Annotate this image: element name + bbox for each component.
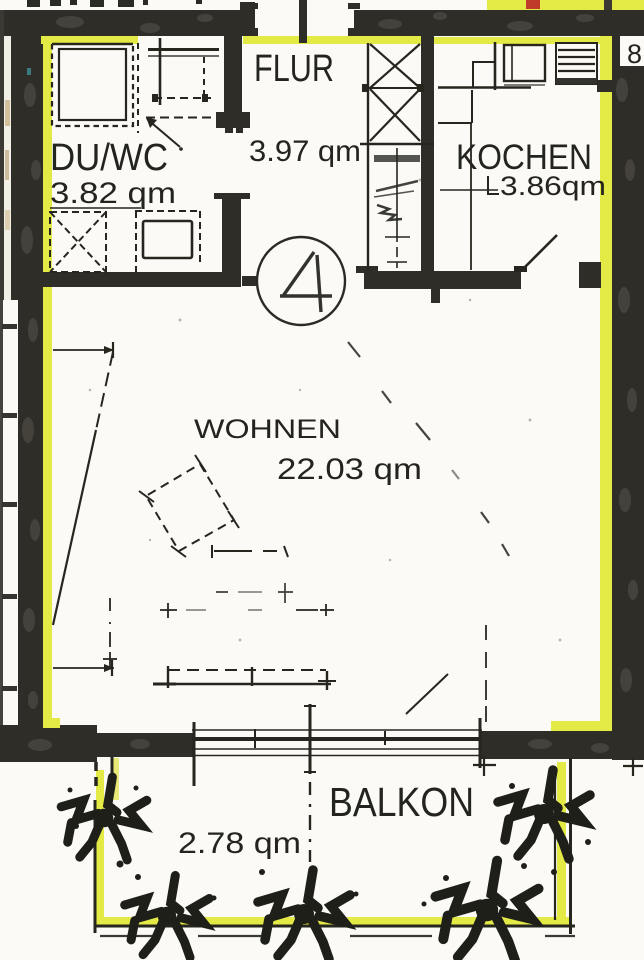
svg-text:8: 8 <box>627 39 642 69</box>
svg-text:3.86qm: 3.86qm <box>500 171 606 201</box>
svg-text:DU/WC: DU/WC <box>50 137 168 179</box>
svg-text:WOHNEN: WOHNEN <box>194 414 341 444</box>
svg-text:3.97 qm: 3.97 qm <box>249 135 361 168</box>
svg-text:3.82 qm: 3.82 qm <box>50 177 176 210</box>
svg-text:FLUR: FLUR <box>254 48 334 90</box>
svg-text:22.03 qm: 22.03 qm <box>277 453 422 486</box>
svg-text:2.78 qm: 2.78 qm <box>178 827 301 860</box>
svg-text:BALKON: BALKON <box>329 779 474 825</box>
